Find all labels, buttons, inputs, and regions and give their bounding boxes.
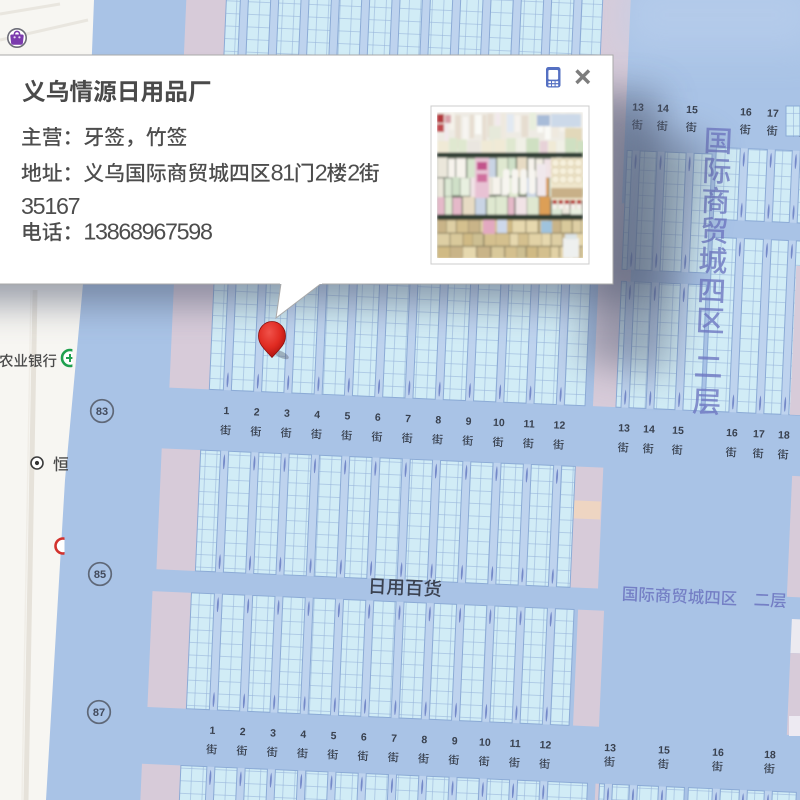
svg-text:18: 18 (778, 429, 790, 442)
svg-text:1: 1 (209, 725, 216, 737)
svg-text:17: 17 (767, 107, 779, 120)
svg-text:15: 15 (658, 744, 670, 757)
svg-text:7: 7 (391, 733, 398, 745)
svg-text:10: 10 (479, 736, 491, 749)
svg-text:13868967598: 13868967598 (83, 219, 212, 245)
svg-text:4: 4 (300, 729, 307, 741)
svg-text:2: 2 (315, 160, 327, 186)
svg-text:85: 85 (94, 569, 106, 581)
svg-text:16: 16 (726, 427, 738, 440)
svg-text:35167: 35167 (21, 193, 80, 219)
svg-text:15: 15 (672, 425, 684, 438)
svg-text:9: 9 (465, 416, 472, 428)
svg-text:83: 83 (96, 406, 108, 418)
svg-text:87: 87 (93, 707, 105, 719)
svg-text:3: 3 (270, 727, 277, 739)
svg-text:8: 8 (435, 414, 442, 426)
svg-text:18: 18 (764, 749, 776, 762)
svg-text:5: 5 (330, 730, 337, 742)
svg-text:11: 11 (523, 418, 535, 430)
svg-text:1: 1 (223, 405, 230, 417)
svg-text:12: 12 (553, 419, 565, 432)
svg-text:3: 3 (284, 408, 291, 420)
svg-text:8: 8 (421, 734, 428, 746)
svg-text:14: 14 (643, 423, 655, 436)
svg-text:16: 16 (712, 747, 724, 760)
svg-text:10: 10 (493, 417, 505, 430)
svg-text:15: 15 (686, 104, 698, 117)
svg-text:9: 9 (451, 735, 458, 747)
svg-text:17: 17 (753, 428, 765, 441)
svg-text:12: 12 (539, 739, 551, 752)
svg-text:2: 2 (240, 726, 247, 738)
svg-text:7: 7 (405, 413, 412, 425)
svg-text:4: 4 (314, 409, 321, 421)
svg-text:13: 13 (618, 422, 630, 435)
svg-text:5: 5 (344, 410, 351, 422)
svg-text:13: 13 (604, 742, 616, 755)
svg-text:16: 16 (740, 106, 752, 119)
svg-text:11: 11 (509, 738, 521, 750)
svg-text:2: 2 (347, 160, 359, 186)
svg-text:81: 81 (271, 160, 295, 186)
svg-text:2: 2 (254, 406, 261, 418)
svg-text:6: 6 (375, 412, 382, 424)
svg-text:6: 6 (361, 731, 368, 743)
